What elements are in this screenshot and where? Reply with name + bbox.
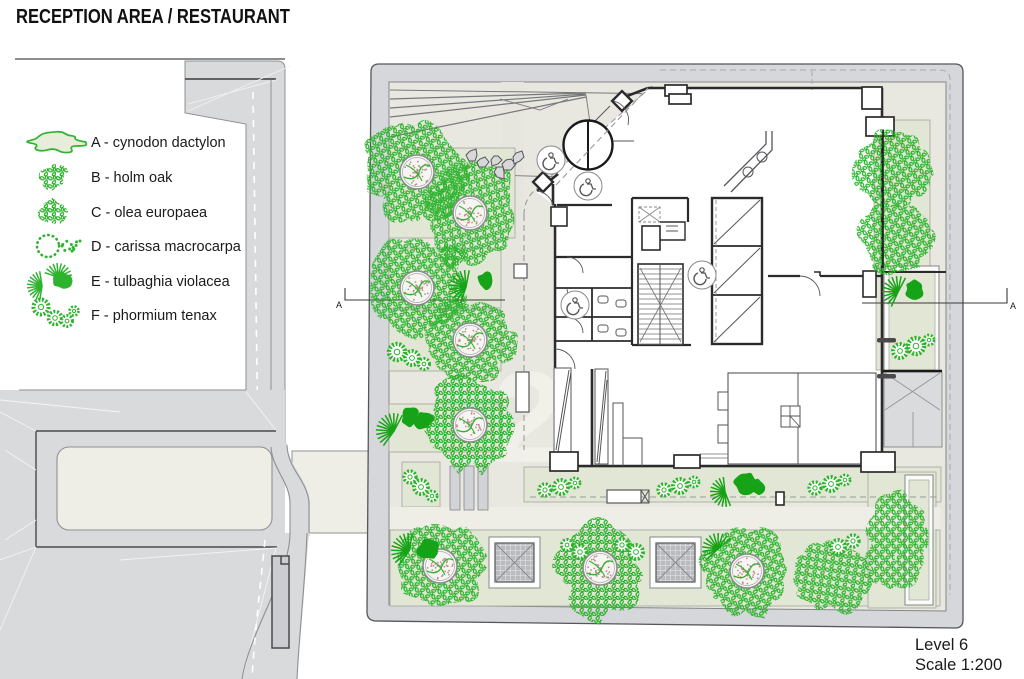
svg-text:F - phormium tenax: F - phormium tenax [91, 308, 217, 324]
svg-text:Level 6: Level 6 [915, 636, 968, 654]
svg-text:A - cynodon dactylon: A - cynodon dactylon [91, 135, 226, 151]
svg-text:B - holm oak: B - holm oak [91, 170, 173, 186]
svg-text:A: A [1010, 301, 1016, 311]
svg-text:D - carissa macrocarpa: D - carissa macrocarpa [91, 239, 242, 255]
svg-text:E - tulbaghia violacea: E - tulbaghia violacea [91, 274, 231, 290]
svg-text:A: A [336, 300, 342, 310]
svg-text:C - olea europaea: C - olea europaea [91, 205, 208, 221]
svg-text:Scale 1:200: Scale 1:200 [915, 656, 1002, 674]
svg-text:RECEPTION AREA / RESTAURANT: RECEPTION AREA / RESTAURANT [16, 5, 291, 28]
